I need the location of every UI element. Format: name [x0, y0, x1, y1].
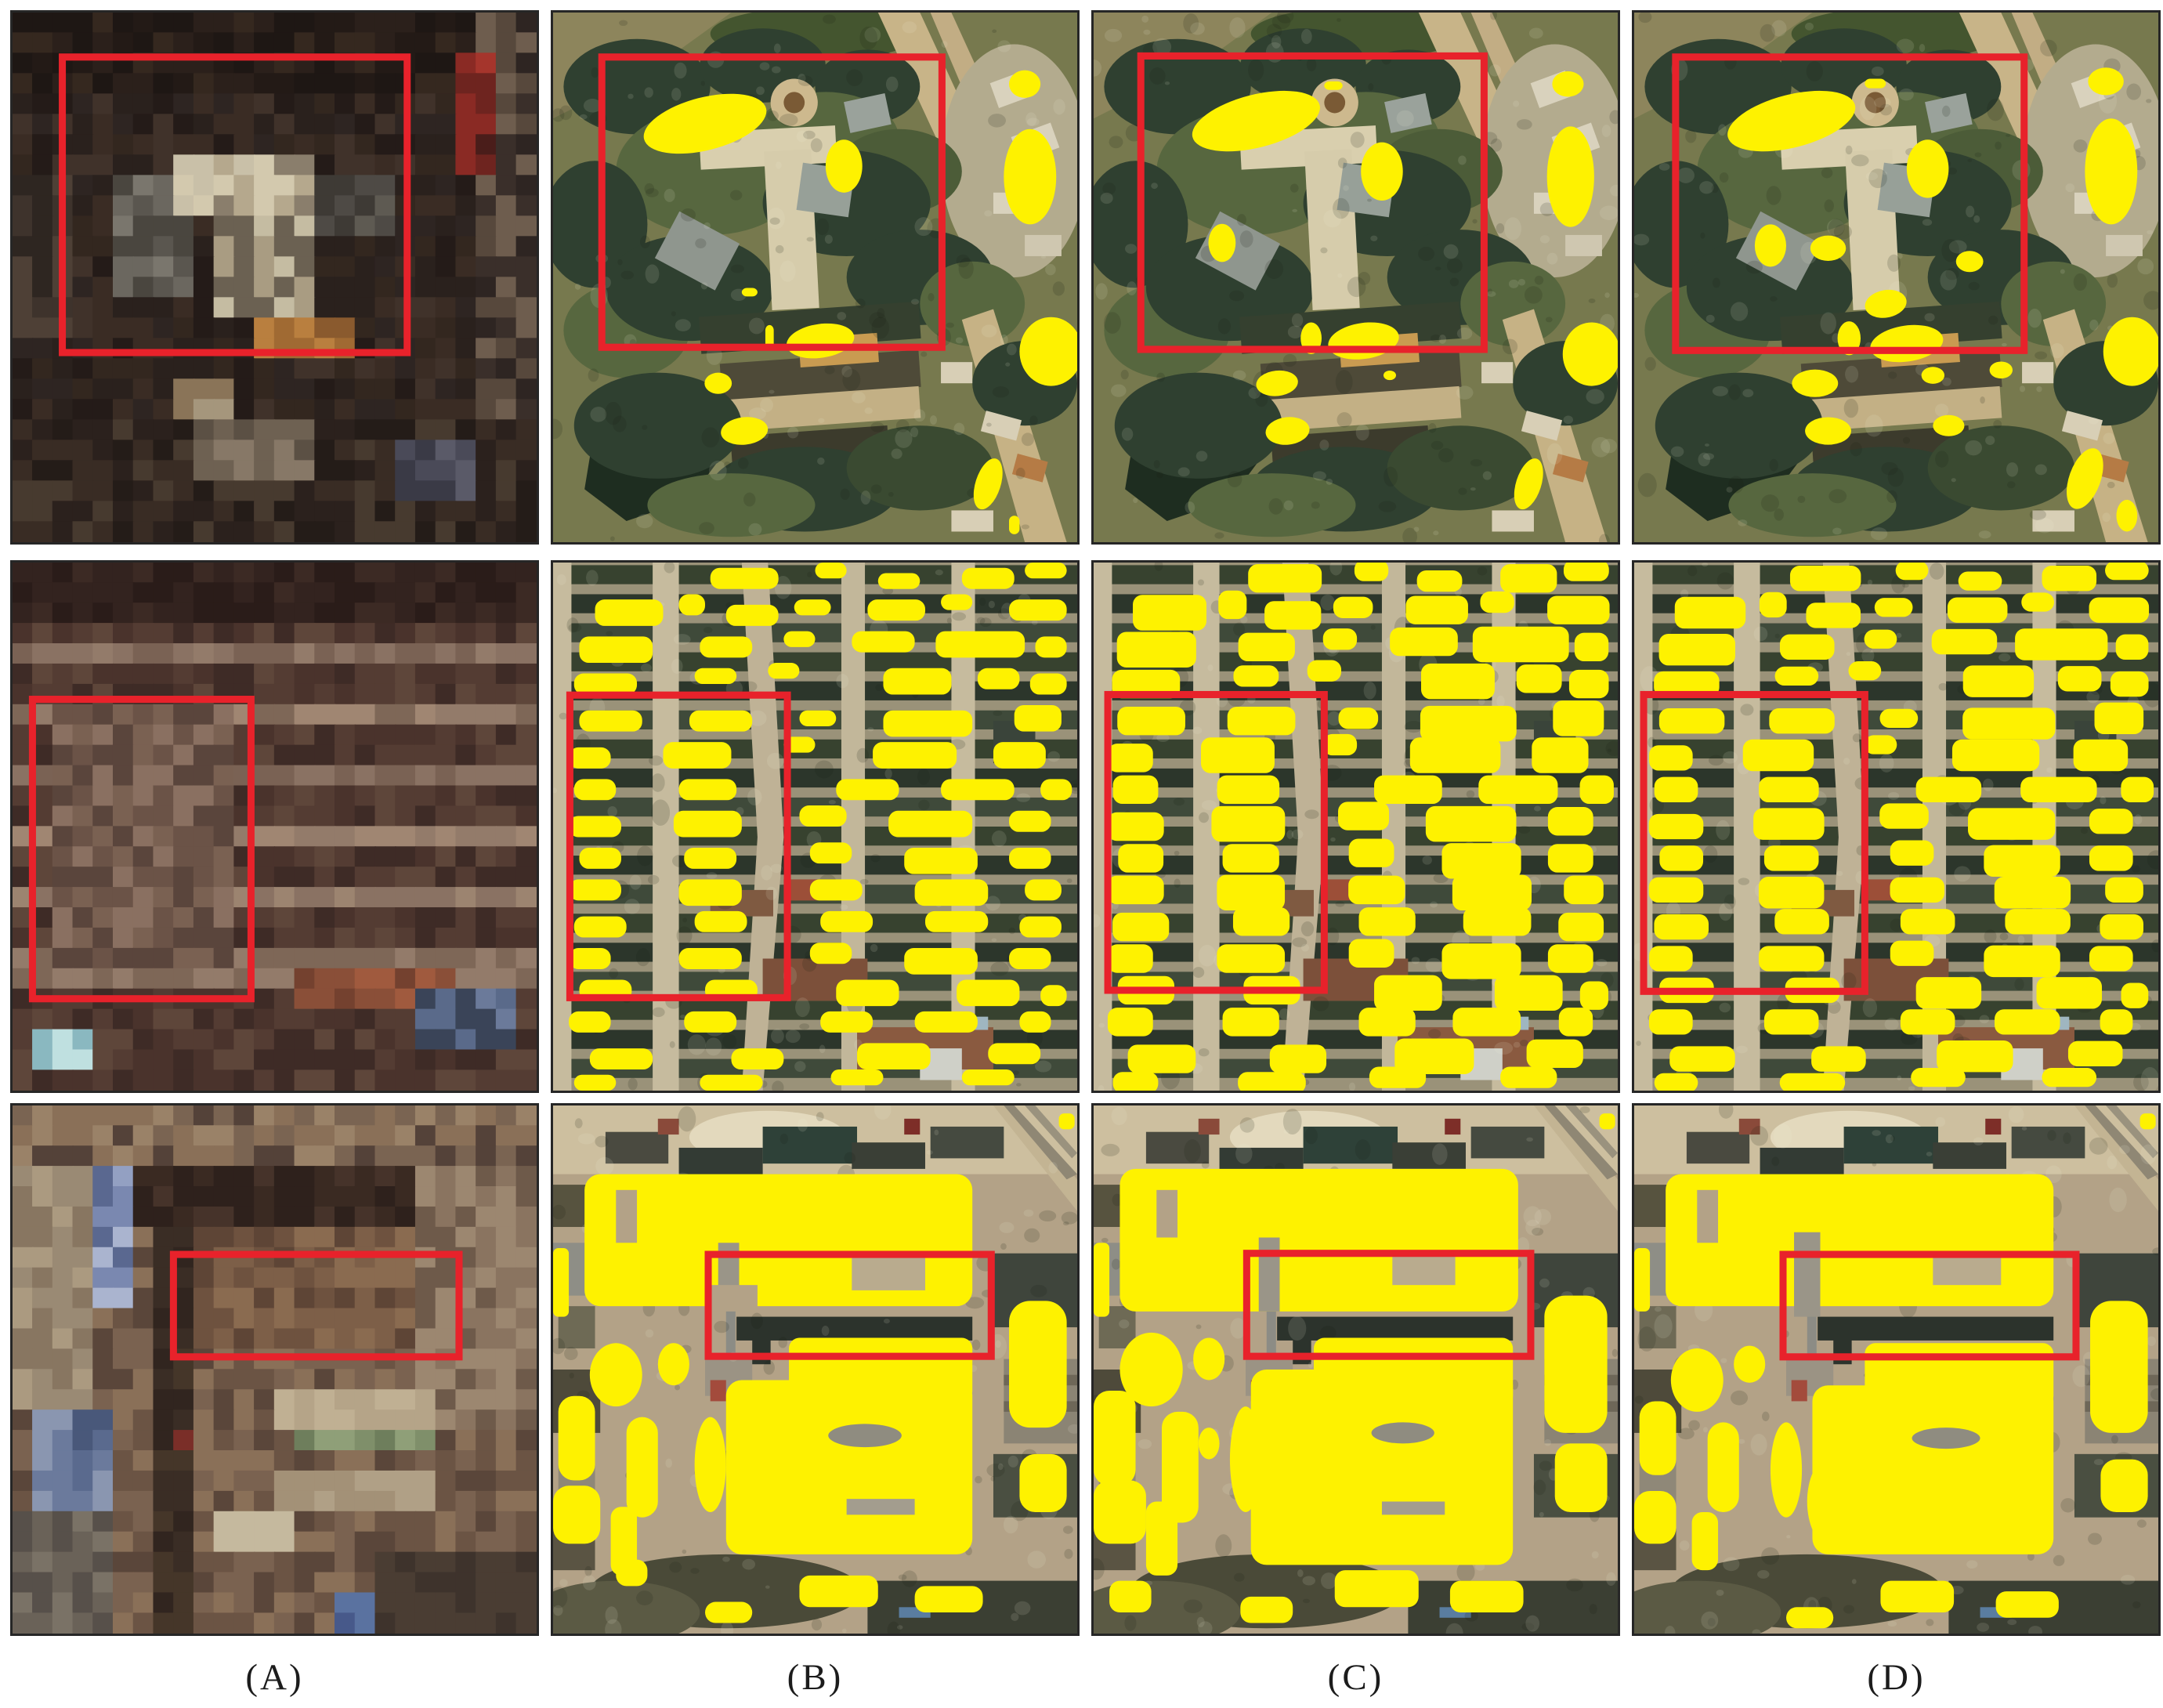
panel-row2-method-c-masks [1091, 560, 1620, 1093]
panel-row2-lowres-input [10, 560, 539, 1093]
column-label-c: (C) [1091, 1650, 1620, 1705]
panel-row1-method-b-masks [551, 10, 1080, 545]
panel-row3-method-b-masks [551, 1103, 1080, 1636]
panel-row3-method-c-masks [1091, 1103, 1620, 1636]
comparison-figure: (A) (B) (C) (D) [0, 0, 2163, 1708]
panel-row2-method-b-masks [551, 560, 1080, 1093]
panel-row1-method-d-masks [1632, 10, 2161, 545]
column-label-a: (A) [10, 1650, 539, 1705]
column-label-d: (D) [1632, 1650, 2161, 1705]
column-label-b: (B) [551, 1650, 1080, 1705]
panel-row3-lowres-input [10, 1103, 539, 1636]
panel-row2-method-d-masks [1632, 560, 2161, 1093]
panel-row3-method-d-masks [1632, 1103, 2161, 1636]
panel-row1-lowres-input [10, 10, 539, 545]
panel-row1-method-c-masks [1091, 10, 1620, 545]
